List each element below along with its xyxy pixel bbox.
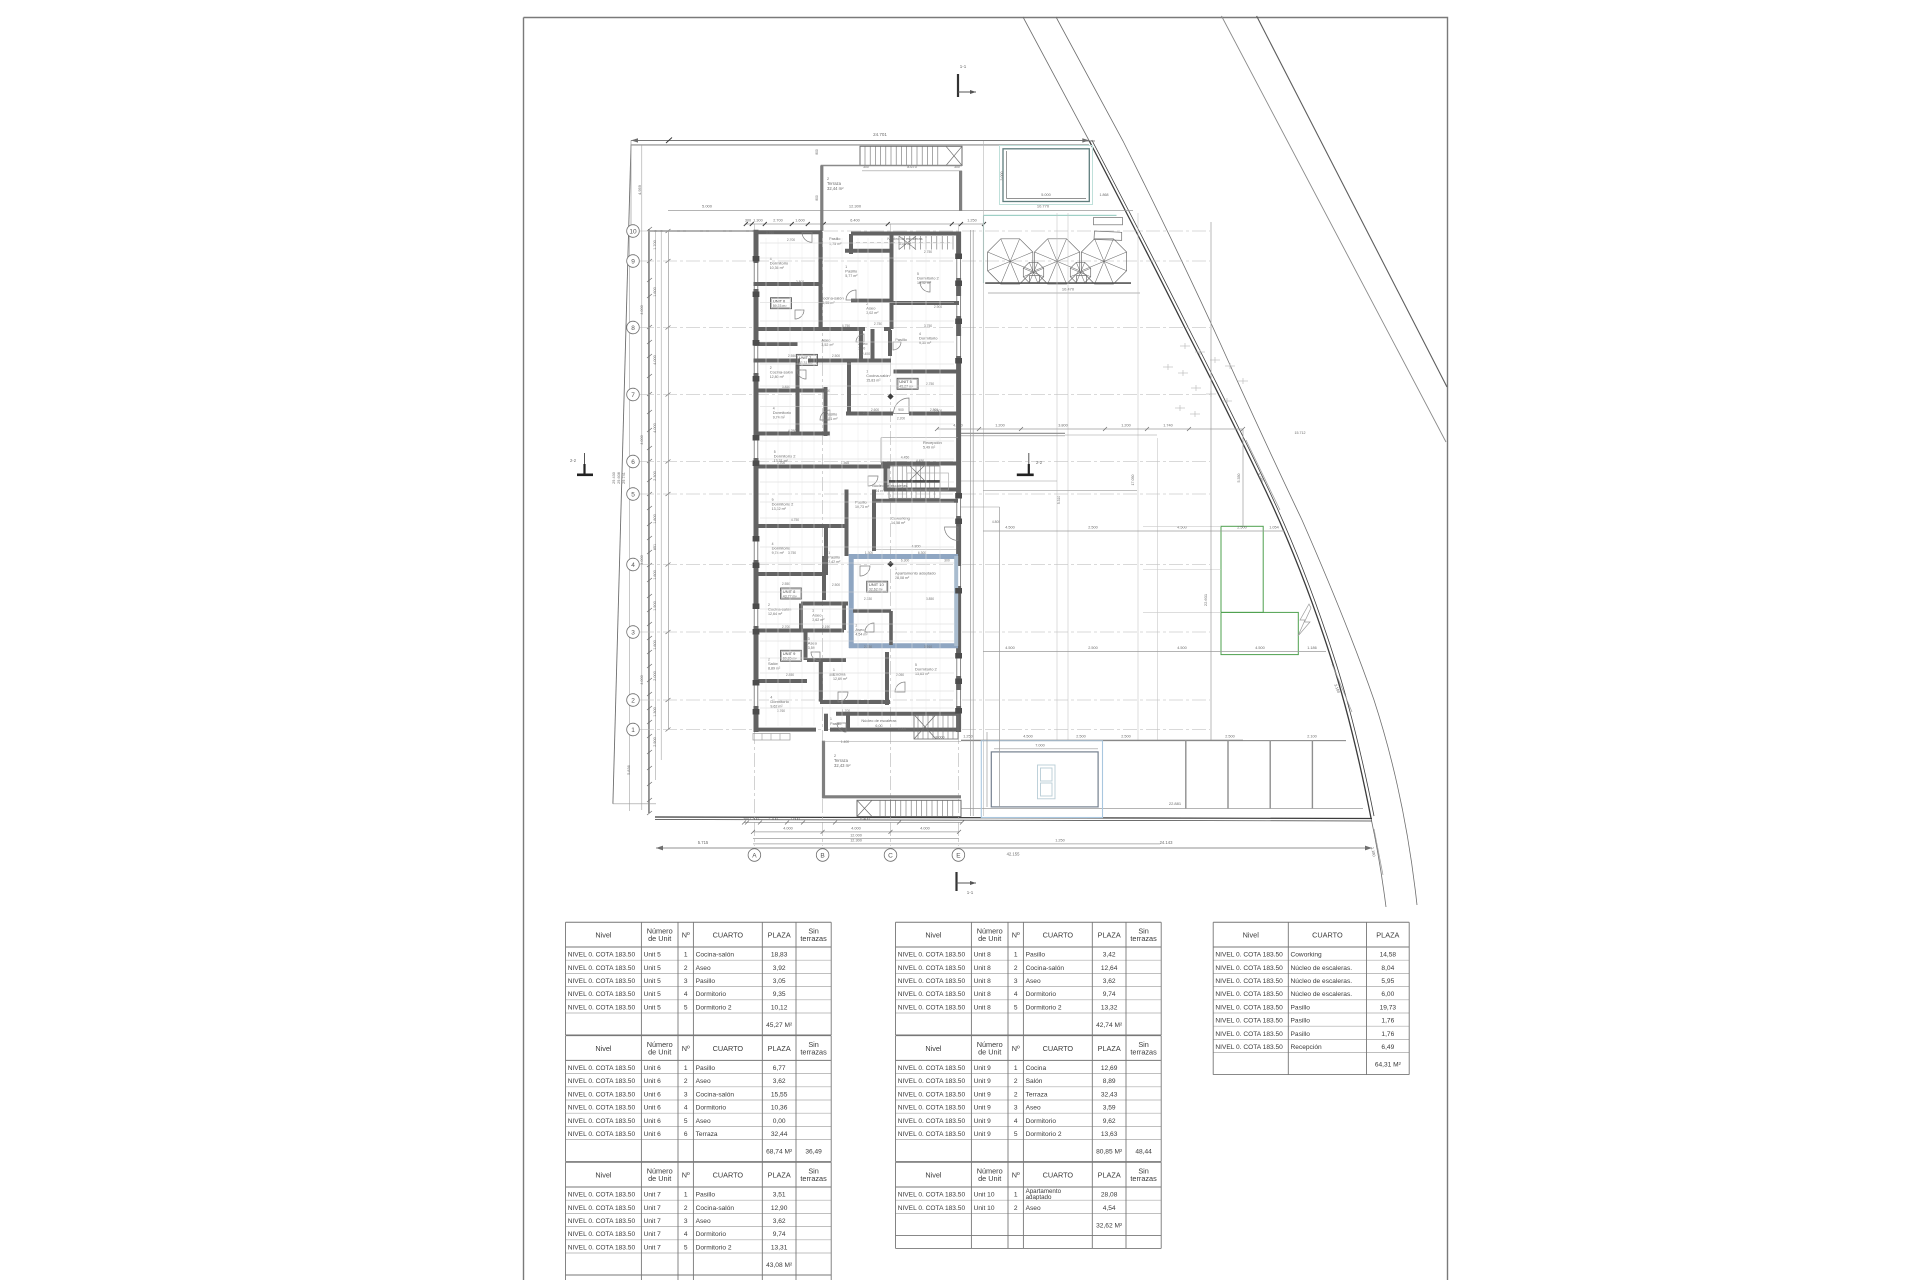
svg-text:8: 8 [631,325,635,332]
svg-text:2.050: 2.050 [896,673,904,677]
svg-text:2.300: 2.300 [653,471,657,481]
svg-text:7.000: 7.000 [1035,744,1045,748]
svg-text:Unit 9: Unit 9 [974,1091,992,1098]
svg-text:12,90: 12,90 [771,1205,788,1212]
svg-text:Cocina-salón: Cocina-salón [696,952,735,959]
svg-text:Cocina-salón: Cocina-salón [770,370,793,375]
svg-text:6.300: 6.300 [901,559,910,563]
svg-text:1: 1 [684,1065,688,1072]
svg-text:NIVEL 0. COTA 183.50: NIVEL 0. COTA 183.50 [1215,991,1283,998]
svg-text:Pasillo: Pasillo [696,1065,716,1072]
svg-text:6.300: 6.300 [918,551,926,555]
svg-text:Unit 7: Unit 7 [644,1218,662,1225]
svg-text:5: 5 [1014,1131,1018,1138]
svg-text:2.500: 2.500 [1121,735,1131,739]
svg-text:32,44: 32,44 [771,1131,788,1138]
svg-text:15,83 m²: 15,83 m² [866,379,881,383]
svg-text:de Unit: de Unit [648,1174,671,1183]
svg-text:Aseo: Aseo [696,965,711,972]
svg-text:13,32: 13,32 [1101,1004,1118,1011]
svg-text:4: 4 [684,1105,688,1112]
svg-text:1.186: 1.186 [1307,646,1317,650]
svg-text:5.350: 5.350 [1237,474,1241,483]
svg-text:Unit 5: Unit 5 [644,952,662,959]
svg-text:3,51: 3,51 [773,1192,786,1199]
svg-text:1.700: 1.700 [653,240,657,250]
svg-text:Unit 6: Unit 6 [644,1091,662,1098]
svg-text:Dormitorio 2: Dormitorio 2 [774,454,797,459]
svg-text:15.712: 15.712 [1295,431,1306,435]
svg-text:4: 4 [684,1231,688,1238]
svg-text:Nivel: Nivel [595,931,612,940]
svg-text:NIVEL 0. COTA 183.50: NIVEL 0. COTA 183.50 [568,1078,636,1085]
svg-text:3,62 m²: 3,62 m² [812,618,825,622]
svg-text:Dormitorio 2: Dormitorio 2 [917,276,940,281]
svg-text:Núcleo de escaleras: Núcleo de escaleras [861,718,896,723]
svg-text:Dormitorio: Dormitorio [919,336,938,341]
svg-text:NIVEL 0. COTA 183.50: NIVEL 0. COTA 183.50 [568,1105,636,1112]
svg-text:NIVEL 0. COTA 183.50: NIVEL 0. COTA 183.50 [1215,952,1283,959]
svg-text:B: B [820,852,824,859]
svg-text:Pasillo: Pasillo [696,978,716,985]
svg-text:Unit 8: Unit 8 [974,978,992,985]
svg-text:1.250: 1.250 [1055,839,1065,843]
svg-text:NIVEL 0. COTA 183.50: NIVEL 0. COTA 183.50 [568,978,636,985]
svg-text:18,83: 18,83 [771,952,788,959]
svg-text:Nivel: Nivel [1243,931,1260,940]
svg-text:2.900: 2.900 [934,305,942,309]
svg-text:PLAZA: PLAZA [1376,931,1399,940]
svg-text:45,27 M²: 45,27 M² [766,1022,793,1029]
svg-text:Núcleo de escaleras.: Núcleo de escaleras. [1291,991,1353,998]
svg-text:2.100: 2.100 [1307,735,1317,739]
svg-text:Aseo: Aseo [1026,1205,1041,1212]
svg-text:8,04: 8,04 [1381,965,1394,972]
svg-text:Núcleo de escaleras.: Núcleo de escaleras. [1291,978,1353,985]
svg-text:800: 800 [815,195,819,201]
svg-text:2: 2 [684,1205,688,1212]
svg-text:2.700: 2.700 [782,625,790,629]
svg-text:3,62: 3,62 [773,1218,786,1225]
svg-text:CUARTO: CUARTO [713,1171,744,1180]
svg-text:Dormitorio 2: Dormitorio 2 [772,502,795,507]
svg-text:3.760: 3.760 [766,231,774,235]
svg-text:Aseo: Aseo [696,1078,711,1085]
svg-text:Aseo: Aseo [696,1218,711,1225]
svg-text:NIVEL 0. COTA 183.50: NIVEL 0. COTA 183.50 [568,1004,636,1011]
svg-text:1.300: 1.300 [822,389,830,393]
svg-text:Unit 9: Unit 9 [974,1065,992,1072]
svg-text:Dormitorio: Dormitorio [772,546,791,551]
svg-text:Nº: Nº [682,1171,690,1180]
svg-text:15,55: 15,55 [771,1091,788,1098]
svg-text:PLAZA: PLAZA [1098,1171,1121,1180]
svg-text:17.050: 17.050 [1131,475,1135,486]
svg-text:12,69 m²: 12,69 m² [833,677,848,681]
svg-text:2: 2 [684,1078,688,1085]
svg-text:C: C [888,852,893,859]
svg-text:Aseo: Aseo [696,1118,711,1125]
svg-text:NIVEL 0. COTA 183.50: NIVEL 0. COTA 183.50 [898,978,966,985]
svg-text:6.750: 6.750 [842,324,850,328]
svg-text:NIVEL 0. COTA 183.50: NIVEL 0. COTA 183.50 [1215,1018,1283,1025]
svg-text:PLAZA: PLAZA [768,1044,791,1053]
svg-text:Unit 7: Unit 7 [644,1205,662,1212]
svg-text:terrazas: terrazas [800,1174,827,1183]
svg-text:PLAZA: PLAZA [768,931,791,940]
svg-text:8,89 m²: 8,89 m² [768,667,781,671]
svg-text:1,75 m²: 1,75 m² [829,242,842,246]
svg-text:14,58: 14,58 [1380,952,1397,959]
svg-text:300: 300 [944,559,950,563]
svg-text:4.450: 4.450 [916,459,924,463]
svg-text:terrazas: terrazas [1130,1174,1157,1183]
svg-text:7: 7 [631,392,635,399]
svg-text:NIVEL 0. COTA 183.50: NIVEL 0. COTA 183.50 [568,991,636,998]
svg-text:12.300: 12.300 [849,204,862,209]
svg-text:de Unit: de Unit [978,1174,1001,1183]
svg-text:68,74 M²: 68,74 M² [766,1149,793,1156]
svg-text:5,77 m²: 5,77 m² [845,274,858,278]
svg-text:4.000: 4.000 [640,555,644,565]
svg-text:Recepción: Recepción [1291,1044,1322,1051]
svg-text:2.800: 2.800 [934,409,942,413]
svg-text:1.300: 1.300 [749,817,759,821]
svg-text:Unit 6: Unit 6 [644,1105,662,1112]
svg-text:4.000: 4.000 [920,827,930,831]
svg-text:4.000: 4.000 [640,305,644,315]
svg-text:2: 2 [684,965,688,972]
svg-text:2: 2 [1014,1078,1018,1085]
svg-text:Dormitorio 2: Dormitorio 2 [915,667,938,672]
svg-text:2.800: 2.800 [796,280,804,284]
svg-text:12,69: 12,69 [1101,1065,1118,1072]
svg-text:Unit 9: Unit 9 [974,1078,992,1085]
svg-text:5.715: 5.715 [698,840,709,845]
svg-text:Unit 10: Unit 10 [974,1192,995,1199]
svg-text:NIVEL 0. COTA 183.50: NIVEL 0. COTA 183.50 [898,1118,966,1125]
svg-text:4.250: 4.250 [788,429,796,433]
svg-text:3.800: 3.800 [1058,424,1068,428]
svg-text:45,27 m²: 45,27 m² [899,385,914,389]
svg-text:Aseo: Aseo [855,627,865,632]
svg-text:Pasillo: Pasillo [830,721,841,726]
svg-text:2.500: 2.500 [1088,526,1098,530]
svg-text:UNIT 7: UNIT 7 [799,355,812,360]
svg-text:NIVEL 0. COTA 183.50: NIVEL 0. COTA 183.50 [568,1091,636,1098]
svg-text:300: 300 [745,219,751,223]
svg-text:NIVEL 0. COTA 183.50: NIVEL 0. COTA 183.50 [568,1065,636,1072]
svg-text:de Unit: de Unit [978,934,1001,943]
svg-text:NIVEL 0. COTA 183.50: NIVEL 0. COTA 183.50 [898,1192,966,1199]
svg-text:4.000: 4.000 [640,675,644,685]
svg-text:4.800: 4.800 [992,520,1000,524]
svg-text:1.700: 1.700 [842,709,850,713]
svg-text:1.600: 1.600 [653,640,657,650]
svg-text:1.400: 1.400 [841,740,849,744]
svg-text:Unit 7: Unit 7 [644,1244,662,1251]
svg-text:3,59: 3,59 [808,646,815,650]
svg-text:PLAZA: PLAZA [768,1171,791,1180]
svg-text:E: E [956,852,961,859]
svg-text:Dormitorio: Dormitorio [770,699,789,704]
svg-text:43,08 M²: 43,08 M² [766,1262,793,1269]
svg-text:29.430: 29.430 [612,472,616,484]
svg-text:Pasillo: Pasillo [1291,1018,1311,1025]
svg-text:NIVEL 0. COTA 183.50: NIVEL 0. COTA 183.50 [1215,1044,1283,1051]
svg-text:Unit 7: Unit 7 [644,1231,662,1238]
svg-text:2: 2 [1014,1091,1018,1098]
svg-text:Dormitorio: Dormitorio [696,1105,727,1112]
svg-text:NIVEL 0. COTA 183.50: NIVEL 0. COTA 183.50 [898,965,966,972]
svg-text:Terraza: Terraza [1026,1091,1048,1098]
svg-text:4.500: 4.500 [1005,526,1015,530]
svg-text:Núcleo de escaleras.: Núcleo de escaleras. [1291,965,1353,972]
svg-text:Unit 10: Unit 10 [974,1205,995,1212]
svg-text:2: 2 [1014,965,1018,972]
svg-text:Dormitorio: Dormitorio [1026,991,1057,998]
svg-text:28,08 m²: 28,08 m² [895,576,910,580]
svg-text:2.250: 2.250 [863,411,871,415]
svg-text:Dormitorio: Dormitorio [773,410,792,415]
svg-text:12.000: 12.000 [850,833,862,837]
svg-text:32,62 m²: 32,62 m² [869,588,884,592]
svg-text:Salón: Salón [768,661,778,666]
svg-text:1.600: 1.600 [790,817,800,821]
svg-text:terrazas: terrazas [800,934,827,943]
svg-text:3.850: 3.850 [926,597,934,601]
svg-text:PLAZA: PLAZA [1098,931,1121,940]
svg-text:Unit 6: Unit 6 [644,1078,662,1085]
svg-text:Núcleo de escaleras.: Núcleo de escaleras. [872,483,908,488]
svg-text:4.000: 4.000 [640,435,644,445]
svg-text:1: 1 [684,952,688,959]
svg-text:2.550: 2.550 [788,354,796,358]
svg-text:Nº: Nº [682,1044,690,1053]
svg-text:4.500: 4.500 [1177,646,1187,650]
svg-text:14,58 m²: 14,58 m² [891,521,906,525]
svg-text:Nº: Nº [1012,1044,1020,1053]
svg-text:Cocina-salón: Cocina-salón [820,296,843,301]
svg-text:UNIT 8: UNIT 8 [783,589,796,594]
svg-text:5.000: 5.000 [1041,193,1051,197]
svg-text:Unit 6: Unit 6 [644,1118,662,1125]
svg-text:48,44: 48,44 [1135,1149,1152,1156]
svg-text:3: 3 [1014,1105,1018,1112]
svg-text:1: 1 [684,1192,688,1199]
svg-text:0,00: 0,00 [773,1118,786,1125]
svg-text:Pasillo: Pasillo [845,269,858,274]
svg-text:3,02 m²: 3,02 m² [866,311,879,315]
svg-text:2.000: 2.000 [653,671,657,681]
svg-text:Nivel: Nivel [595,1044,612,1053]
svg-text:Unit 9: Unit 9 [974,1131,992,1138]
svg-text:NIVEL 0. COTA 183.50: NIVEL 0. COTA 183.50 [568,1205,636,1212]
svg-text:6,00: 6,00 [1381,991,1394,998]
svg-text:12,64: 12,64 [1101,965,1118,972]
svg-text:PLAZA: PLAZA [1098,1044,1121,1053]
svg-text:2.450: 2.450 [862,352,870,356]
svg-text:NIVEL 0. COTA 183.50: NIVEL 0. COTA 183.50 [898,1131,966,1138]
svg-text:5: 5 [1014,1004,1018,1011]
svg-text:3: 3 [1014,978,1018,985]
svg-text:42,74 M²: 42,74 M² [1096,1022,1123,1029]
svg-text:9,35: 9,35 [773,991,786,998]
svg-text:NIVEL 0. COTA 183.50: NIVEL 0. COTA 183.50 [898,1004,966,1011]
svg-text:3,52 m²: 3,52 m² [821,343,834,347]
svg-text:Nº: Nº [682,931,690,940]
svg-text:Pasillo: Pasillo [1026,952,1046,959]
svg-text:3,62: 3,62 [773,1078,786,1085]
svg-text:de Unit: de Unit [648,1047,671,1056]
svg-text:NIVEL 0. COTA 183.50: NIVEL 0. COTA 183.50 [898,1078,966,1085]
svg-text:Unit 6: Unit 6 [644,1131,662,1138]
svg-text:NIVEL 0. COTA 183.50: NIVEL 0. COTA 183.50 [898,952,966,959]
svg-text:1.250: 1.250 [967,219,977,223]
svg-text:13,63: 13,63 [1101,1131,1118,1138]
svg-text:64,31 M²: 64,31 M² [1375,1062,1402,1069]
svg-text:1,76: 1,76 [1381,1031,1394,1038]
svg-text:adaptado: adaptado [1026,1194,1052,1201]
svg-text:12,64 m²: 12,64 m² [768,612,783,616]
svg-text:4.750: 4.750 [791,518,799,522]
svg-text:Dormitorio 2: Dormitorio 2 [1026,1131,1062,1138]
svg-text:Cocina: Cocina [1026,1065,1047,1072]
svg-text:1.600: 1.600 [653,570,657,580]
svg-text:CUARTO: CUARTO [1312,931,1343,940]
svg-text:Terraza: Terraza [696,1131,718,1138]
svg-text:1-1: 1-1 [967,890,974,895]
svg-text:Unit 5: Unit 5 [644,965,662,972]
svg-text:1.600: 1.600 [795,219,805,223]
svg-text:24.143: 24.143 [1160,840,1173,845]
svg-text:8.000: 8.000 [898,727,906,731]
svg-text:3: 3 [631,629,635,636]
svg-text:1.200: 1.200 [995,424,1005,428]
svg-text:19,73: 19,73 [1380,1004,1397,1011]
svg-text:Pasillo: Pasillo [1291,1031,1311,1038]
svg-text:Dormitorio: Dormitorio [696,991,727,998]
svg-text:10: 10 [629,228,637,235]
svg-text:9,62: 9,62 [1103,1118,1116,1125]
svg-text:NIVEL 0. COTA 183.50: NIVEL 0. COTA 183.50 [568,1192,636,1199]
svg-text:Pasillo: Pasillo [825,412,838,417]
svg-text:1: 1 [1014,1065,1018,1072]
svg-text:10,36 m²: 10,36 m² [770,266,785,270]
svg-text:Nivel: Nivel [925,1044,942,1053]
svg-text:80,85 M²: 80,85 M² [1096,1149,1123,1156]
svg-text:36,49: 36,49 [805,1149,822,1156]
svg-text:3,42: 3,42 [1103,952,1116,959]
svg-text:2.500: 2.500 [832,354,840,358]
svg-text:Pasillo: Pasillo [1291,1004,1311,1011]
svg-text:2.750: 2.750 [924,250,932,254]
svg-text:Dormitorio 2: Dormitorio 2 [1026,1004,1062,1011]
svg-text:6,77: 6,77 [773,1065,786,1072]
svg-text:59,23 m²: 59,23 m² [773,304,788,308]
svg-text:10,12: 10,12 [771,1004,788,1011]
svg-text:32,44 m²: 32,44 m² [827,186,844,191]
svg-text:5: 5 [684,1244,688,1251]
svg-text:5.310: 5.310 [1057,496,1061,505]
svg-text:2.500: 2.500 [1237,526,1247,530]
svg-text:24.701: 24.701 [873,132,887,137]
svg-text:6,00: 6,00 [875,724,882,728]
svg-text:2.750: 2.750 [926,382,934,386]
svg-text:2.600: 2.600 [871,408,879,412]
svg-text:NIVEL 0. COTA 183.50: NIVEL 0. COTA 183.50 [898,1105,966,1112]
svg-text:2: 2 [1014,1205,1018,1212]
svg-text:4: 4 [1014,991,1018,998]
svg-text:29.741: 29.741 [622,472,626,484]
svg-text:Cocina-salón: Cocina-salón [1026,965,1065,972]
svg-text:5.836: 5.836 [627,765,631,775]
svg-text:Nivel: Nivel [595,1171,612,1180]
svg-text:NIVEL 0. COTA 183.50: NIVEL 0. COTA 183.50 [568,1118,636,1125]
svg-text:4.500: 4.500 [1023,735,1033,739]
svg-text:22.601: 22.601 [1203,593,1208,606]
svg-text:Unit 8: Unit 8 [974,1004,992,1011]
svg-text:6: 6 [684,1131,688,1138]
svg-text:3,90: 3,90 [858,347,865,351]
svg-text:1: 1 [1014,952,1018,959]
svg-text:800: 800 [815,149,819,155]
svg-text:6.400: 6.400 [860,817,870,821]
svg-text:Nivel: Nivel [925,931,942,940]
svg-text:4.000: 4.000 [653,355,657,365]
svg-text:NIVEL 0. COTA 183.50: NIVEL 0. COTA 183.50 [898,1065,966,1072]
svg-text:900: 900 [898,408,904,412]
svg-text:CUARTO: CUARTO [1043,1171,1074,1180]
svg-text:Unit 5: Unit 5 [644,978,662,985]
svg-text:NIVEL 0. COTA 183.50: NIVEL 0. COTA 183.50 [1215,965,1283,972]
svg-text:6,49: 6,49 [1381,1044,1394,1051]
svg-text:5: 5 [684,1004,688,1011]
svg-text:Cocina-salón: Cocina-salón [696,1205,735,1212]
svg-text:CUARTO: CUARTO [713,1044,744,1053]
svg-text:4.000: 4.000 [851,827,861,831]
svg-text:Pasillo: Pasillo [895,337,908,342]
svg-text:1-1: 1-1 [960,64,967,69]
svg-text:Unit 6: Unit 6 [644,1065,662,1072]
svg-text:2.500: 2.500 [1076,735,1086,739]
svg-text:2.550: 2.550 [782,582,790,586]
svg-text:Aseo: Aseo [808,641,818,646]
svg-text:3: 3 [684,1218,688,1225]
svg-text:851: 851 [653,544,657,550]
svg-text:2.700: 2.700 [787,238,795,242]
svg-text:8,89: 8,89 [1103,1078,1116,1085]
svg-text:2.700: 2.700 [768,817,778,821]
svg-text:Unit 8: Unit 8 [974,991,992,998]
svg-text:10,12 m²: 10,12 m² [917,281,932,285]
svg-text:Pasillo: Pasillo [829,236,840,241]
svg-text:CUARTO: CUARTO [1043,1044,1074,1053]
svg-text:12.300: 12.300 [850,839,862,843]
svg-text:1.900: 1.900 [653,601,657,611]
svg-text:A: A [752,852,757,859]
svg-text:9,74: 9,74 [773,1231,786,1238]
svg-text:4.800: 4.800 [912,545,921,549]
svg-text:1.600: 1.600 [653,287,657,297]
svg-text:Dormitorio: Dormitorio [696,1231,727,1238]
svg-text:UNIT 9: UNIT 9 [783,651,796,656]
svg-text:Apartamento adaptado: Apartamento adaptado [895,571,936,576]
svg-text:2.500: 2.500 [1088,646,1098,650]
svg-text:1: 1 [631,727,635,734]
svg-text:42.155: 42.155 [1007,852,1020,857]
svg-text:4.500: 4.500 [1005,646,1015,650]
